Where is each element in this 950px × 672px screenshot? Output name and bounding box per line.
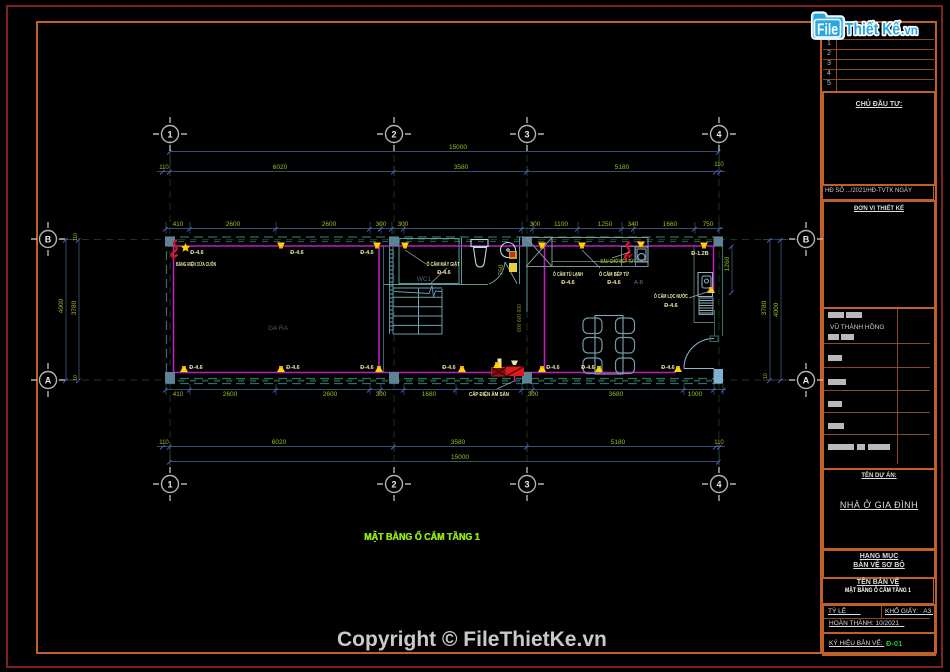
svg-text:15000: 15000 xyxy=(451,454,469,461)
svg-text:1: 1 xyxy=(167,480,172,490)
svg-text:Ỗ CẮM BẾP TỪ: Ỗ CẮM BẾP TỪ xyxy=(599,270,629,278)
svg-text:CẤP ĐIỆN ÂM SÀN: CẤP ĐIỆN ÂM SÀN xyxy=(469,390,509,398)
svg-text:300: 300 xyxy=(530,221,541,228)
svg-text:6020: 6020 xyxy=(273,164,288,171)
svg-text:BẢNG ĐIỆN CỬA CUỐN: BẢNG ĐIỆN CỬA CUỐN xyxy=(176,260,216,268)
svg-text:2: 2 xyxy=(391,480,396,490)
svg-text:Đ-4.6: Đ-4.6 xyxy=(664,303,677,309)
svg-text:1660: 1660 xyxy=(663,221,678,228)
svg-text:3580: 3580 xyxy=(451,439,466,446)
svg-text:750: 750 xyxy=(703,221,714,228)
svg-text:Đ-4.6: Đ-4.6 xyxy=(561,280,574,286)
svg-text:110: 110 xyxy=(714,162,724,168)
svg-text:300: 300 xyxy=(398,221,409,228)
svg-text:600 600 600: 600 600 600 xyxy=(517,304,523,332)
svg-text:4000: 4000 xyxy=(58,298,65,313)
svg-text:2600: 2600 xyxy=(322,221,337,228)
svg-text:2600: 2600 xyxy=(226,221,241,228)
svg-text:A-B: A-B xyxy=(634,280,644,286)
svg-text:2600: 2600 xyxy=(223,391,238,398)
svg-text:A: A xyxy=(803,376,810,386)
svg-text:340: 340 xyxy=(628,221,639,228)
svg-text:1: 1 xyxy=(167,130,172,140)
svg-text:Đ-4.6: Đ-4.6 xyxy=(581,365,594,371)
svg-text:4: 4 xyxy=(716,130,721,140)
svg-text:Ỗ CẮM TỦ LẠNH: Ỗ CẮM TỦ LẠNH xyxy=(553,270,583,278)
svg-text:Đ-4.6: Đ-4.6 xyxy=(360,365,373,371)
svg-text:Đ-4.6: Đ-4.6 xyxy=(190,250,203,256)
svg-text:Đ-4.6: Đ-4.6 xyxy=(437,270,450,276)
svg-text:1680: 1680 xyxy=(422,391,437,398)
svg-text:4000: 4000 xyxy=(773,302,780,317)
svg-text:WC1: WC1 xyxy=(417,276,432,283)
svg-text:300: 300 xyxy=(376,391,387,398)
svg-text:410: 410 xyxy=(173,391,184,398)
svg-text:Ỗ CẮM LỌC NƯỚC: Ỗ CẮM LỌC NƯỚC xyxy=(654,292,688,300)
svg-text:Đ-4.6: Đ-4.6 xyxy=(607,280,620,286)
svg-text:300: 300 xyxy=(376,221,387,228)
svg-text:5180: 5180 xyxy=(611,439,626,446)
svg-text:110: 110 xyxy=(159,440,169,446)
svg-text:Đ-4.6: Đ-4.6 xyxy=(661,365,674,371)
svg-text:3: 3 xyxy=(524,130,529,140)
svg-text:300: 300 xyxy=(528,391,539,398)
svg-text:110: 110 xyxy=(73,233,79,241)
svg-text:Đ-4.6: Đ-4.6 xyxy=(546,365,559,371)
svg-text:Đ-4.6: Đ-4.6 xyxy=(442,365,455,371)
svg-text:1250: 1250 xyxy=(598,221,613,228)
svg-text:B: B xyxy=(45,235,52,245)
svg-text:GA RA: GA RA xyxy=(268,325,289,332)
svg-text:3780: 3780 xyxy=(761,300,768,315)
svg-text:ĐẦU CHỜ BẾP TỪ: ĐẦU CHỜ BẾP TỪ xyxy=(601,257,634,265)
svg-text:2600: 2600 xyxy=(323,391,338,398)
svg-text:Ỗ CẮM MÁY GIẬT: Ỗ CẮM MÁY GIẬT xyxy=(427,260,460,268)
svg-text:410: 410 xyxy=(173,221,184,228)
svg-text:110: 110 xyxy=(159,165,169,171)
svg-text:2: 2 xyxy=(391,130,396,140)
svg-text:Đ-4.6: Đ-4.6 xyxy=(290,250,303,256)
svg-text:110: 110 xyxy=(714,440,724,446)
svg-text:B: B xyxy=(803,235,810,245)
svg-text:1260: 1260 xyxy=(724,256,731,271)
svg-text:15000: 15000 xyxy=(449,144,467,151)
svg-text:1100: 1100 xyxy=(554,221,568,228)
svg-text:Đ-4.6: Đ-4.6 xyxy=(286,365,299,371)
svg-text:Đ-4.6: Đ-4.6 xyxy=(189,365,202,371)
svg-text:Đ-4.6: Đ-4.6 xyxy=(360,250,373,256)
svg-text:1000: 1000 xyxy=(688,391,703,398)
svg-text:A: A xyxy=(45,376,52,386)
svg-text:3580: 3580 xyxy=(454,164,469,171)
svg-text:4: 4 xyxy=(716,480,721,490)
svg-text:3780: 3780 xyxy=(71,300,78,315)
svg-text:Đ-1.2B: Đ-1.2B xyxy=(691,251,708,257)
svg-text:10: 10 xyxy=(763,373,769,379)
svg-text:5180: 5180 xyxy=(615,164,630,171)
svg-text:6020: 6020 xyxy=(272,439,287,446)
svg-text:3: 3 xyxy=(524,480,529,490)
svg-text:10: 10 xyxy=(73,375,79,381)
svg-text:3680: 3680 xyxy=(609,391,624,398)
